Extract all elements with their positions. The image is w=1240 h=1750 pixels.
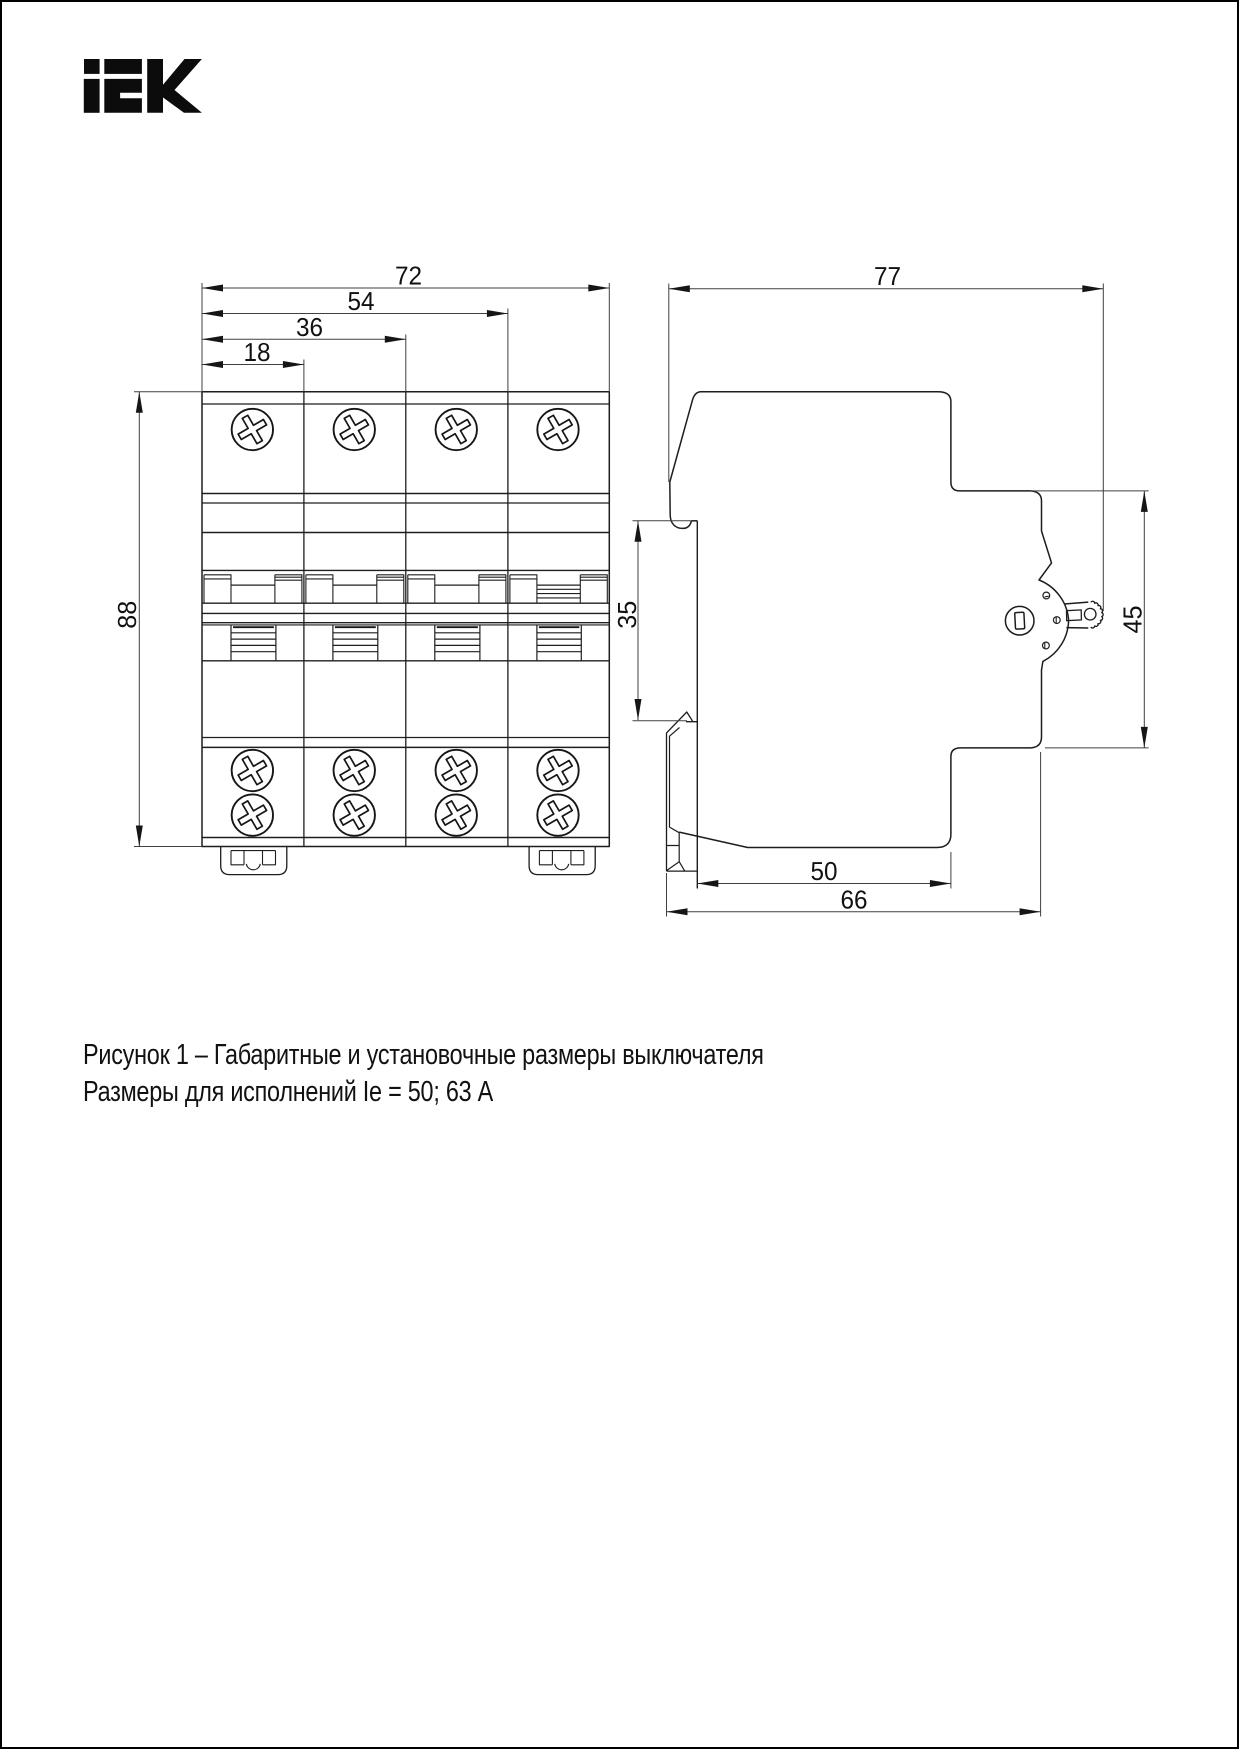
svg-text:45: 45 [1118,606,1148,634]
svg-text:50: 50 [810,856,837,886]
svg-text:66: 66 [840,884,867,914]
svg-text:18: 18 [243,337,270,367]
svg-text:77: 77 [874,261,901,291]
svg-text:36: 36 [296,312,323,342]
svg-text:35: 35 [612,601,642,629]
svg-text:72: 72 [395,260,422,290]
svg-text:54: 54 [347,286,374,316]
svg-text:88: 88 [112,601,142,629]
